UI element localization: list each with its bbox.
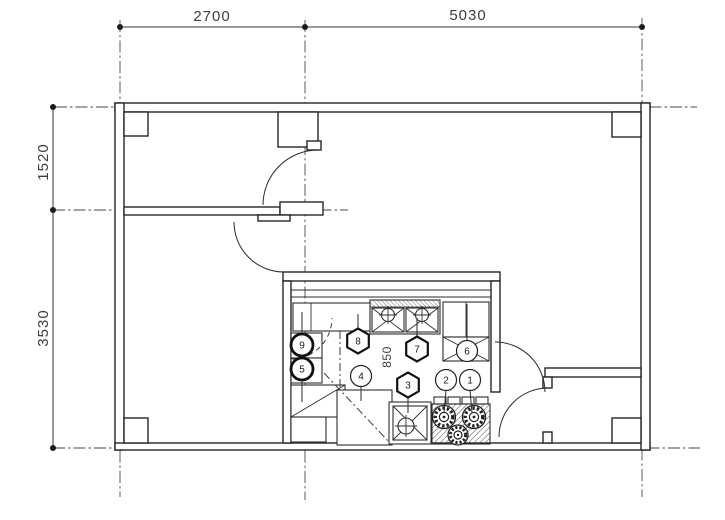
- marker-3: 3: [397, 373, 419, 398]
- dim-tick: [50, 207, 56, 213]
- double-sink: [370, 300, 440, 334]
- cabinet-small: [291, 417, 326, 442]
- stove-knob: [476, 397, 488, 404]
- dimension-label-top-left: 2700: [193, 8, 230, 25]
- dim-tick: [50, 445, 56, 451]
- dim-tick: [302, 24, 308, 30]
- floor-plan-page: 2700 5030 1520 3530 850: [0, 0, 725, 520]
- dim-tick: [117, 24, 123, 30]
- wall-top: [115, 103, 650, 112]
- dim-tick: [639, 24, 645, 30]
- wall-kitchen-right: [491, 281, 500, 392]
- stove: [432, 397, 490, 445]
- burner-icon: [463, 406, 486, 429]
- entry-door-jamb-bottom: [543, 432, 552, 443]
- marker-4: 4: [351, 366, 372, 387]
- dim-tick: [50, 104, 56, 110]
- wall-left: [115, 103, 124, 450]
- wall-kitchen-top: [283, 272, 500, 281]
- svg-text:3: 3: [405, 381, 411, 392]
- door-swing-arc-bedroom: [263, 150, 318, 205]
- wall-right: [641, 103, 650, 450]
- marker-5: 5: [291, 358, 313, 380]
- svg-text:1: 1: [467, 376, 473, 387]
- door-b-jamb: [307, 141, 321, 150]
- dimension-label-top-right: 5030: [449, 7, 486, 24]
- wall-vestibule-top: [545, 368, 641, 377]
- svg-text:2: 2: [443, 376, 449, 387]
- marker-9: 9: [291, 334, 313, 356]
- dimension-label-left-lower: 3530: [35, 309, 52, 346]
- marker-8: 8: [347, 329, 369, 354]
- stove-knob: [448, 397, 460, 404]
- floor-plan-canvas: 2700 5030 1520 3530 850: [0, 0, 725, 520]
- pilaster-bottom-right: [612, 418, 641, 443]
- wall-kitchen-left: [283, 281, 291, 443]
- svg-text:9: 9: [299, 341, 305, 352]
- svg-text:4: 4: [358, 372, 364, 383]
- marker-7: 7: [406, 337, 428, 362]
- door-swing-arc-kitchen: [495, 342, 545, 392]
- svg-text:8: 8: [355, 337, 361, 348]
- door-a-leaf: [258, 215, 290, 221]
- marker-1: 1: [460, 370, 481, 391]
- wall-room-divider: [124, 207, 280, 215]
- dimension-label-counter-850: 850: [380, 346, 394, 368]
- svg-text:7: 7: [414, 345, 420, 356]
- svg-text:5: 5: [299, 365, 305, 376]
- door-swing-arc-room-divider: [234, 222, 284, 272]
- marker-6: 6: [457, 341, 478, 362]
- stove-knob: [462, 397, 474, 404]
- pilaster-top-right: [612, 112, 641, 137]
- burner-icon: [448, 425, 468, 445]
- pilaster-top-left: [124, 112, 148, 136]
- marker-2: 2: [436, 370, 457, 391]
- dimension-lines: [50, 24, 645, 451]
- sink-drainboard: [370, 300, 440, 307]
- dimension-label-left-upper: 1520: [35, 143, 52, 180]
- svg-text:6: 6: [464, 347, 470, 358]
- single-sink: [389, 402, 431, 444]
- door-swing-arc-entry: [499, 388, 548, 437]
- pilaster-bottom-left: [124, 418, 148, 443]
- stove-knob: [434, 397, 446, 404]
- wall-divider-end-block: [280, 202, 323, 215]
